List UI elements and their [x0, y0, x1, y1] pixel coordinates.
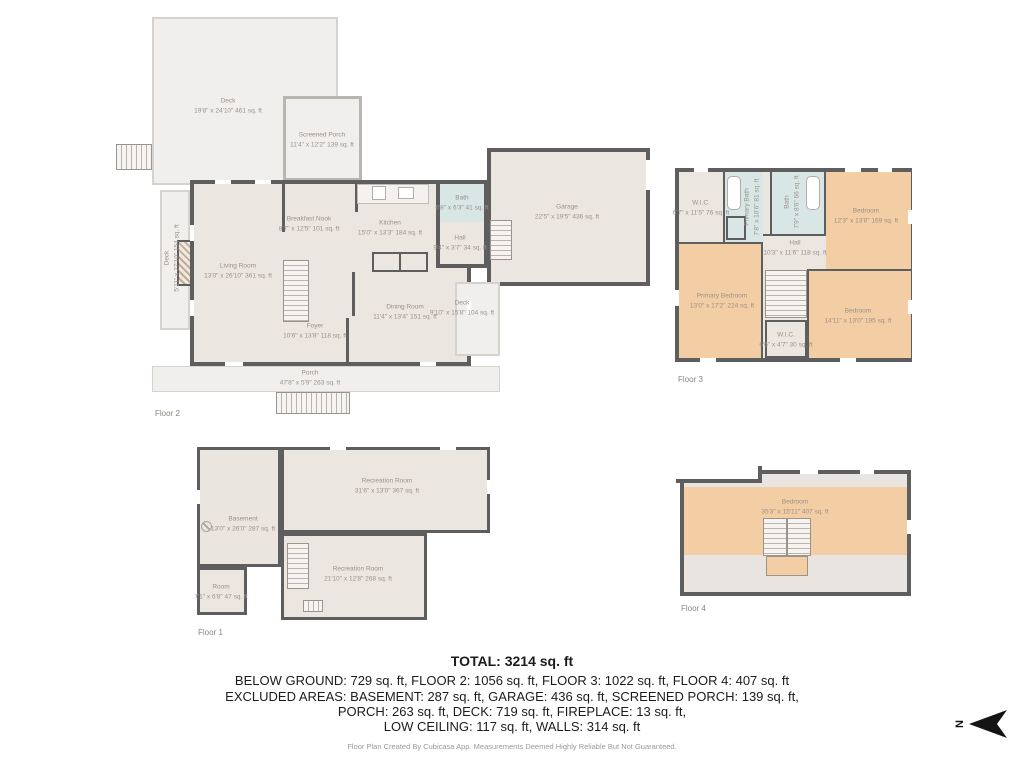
floor2-garage-outline — [487, 148, 650, 286]
interior-wall — [282, 184, 285, 232]
floor1-entry-steps — [303, 600, 323, 612]
floor3-hall — [763, 234, 826, 269]
window — [675, 290, 679, 306]
summary-total: TOTAL: 3214 sq. ft — [0, 653, 1024, 669]
garage-door-opening — [646, 160, 650, 190]
floor4-stairs-left — [763, 518, 787, 556]
window — [840, 358, 856, 362]
floor4-stairs-right — [787, 518, 811, 556]
window — [197, 490, 200, 504]
compass-north-label: N — [954, 720, 966, 728]
window — [878, 168, 892, 172]
summary-footer-disclaimer: Floor Plan Created By Cubicasa App. Meas… — [0, 742, 1024, 751]
window — [907, 520, 911, 534]
window — [908, 210, 912, 224]
floor3-bedroom-top — [826, 172, 911, 269]
shower-icon — [726, 216, 746, 240]
window — [330, 447, 346, 450]
stove-icon — [372, 186, 386, 200]
window — [190, 225, 194, 241]
kitchen-counter — [357, 184, 429, 204]
floor4-stair-landing — [766, 556, 808, 576]
floor2-screened-porch — [283, 96, 362, 181]
summary-line-lowceiling-walls: LOW CEILING: 117 sq. ft, WALLS: 314 sq. … — [0, 719, 1024, 734]
floor3-stairs — [765, 270, 807, 318]
floor1-stairs — [287, 543, 309, 589]
floor2-deck-right — [455, 282, 500, 356]
summary-line-porch-deck: PORCH: 263 sq. ft, DECK: 719 sq. ft, FIR… — [0, 704, 1024, 719]
window — [255, 180, 271, 184]
window — [860, 470, 874, 474]
window — [487, 480, 490, 494]
floor3-wic-top — [679, 172, 723, 242]
window — [467, 300, 471, 314]
closet-divider — [399, 252, 401, 272]
floor1-room — [197, 567, 247, 615]
floor1-basement — [197, 447, 281, 567]
window — [700, 358, 716, 362]
floor2-stairs — [283, 260, 309, 322]
lamp-icon — [201, 521, 212, 532]
north-arrow-icon — [968, 708, 1008, 740]
window — [845, 168, 861, 172]
floor1-rec-top — [281, 447, 490, 533]
floor3-label: Floor 3 — [678, 375, 703, 384]
window — [190, 300, 194, 316]
bathtub-icon — [727, 176, 741, 210]
floor2-label: Floor 2 — [155, 409, 180, 418]
floor2-bath-room — [440, 184, 484, 222]
kitchen-sink-icon — [398, 187, 414, 199]
summary-line-excluded: EXCLUDED AREAS: BASEMENT: 287 sq. ft, GA… — [0, 689, 1024, 704]
floor4-label: Floor 4 — [681, 604, 706, 613]
interior-wall — [352, 272, 355, 316]
compass: N — [948, 706, 1008, 742]
window — [225, 362, 243, 366]
floor1-label: Floor 1 — [198, 628, 223, 637]
floor2-house-outline — [190, 180, 471, 366]
garage-stairs — [490, 220, 512, 260]
floor-plan-page: Deck 19'8" x 24'10" 461 sq. ft Screened … — [0, 0, 1024, 768]
floor2-porch-steps — [276, 392, 350, 414]
floor3-bedroom-bottom — [807, 269, 911, 358]
window — [440, 447, 456, 450]
floor2-deck-stairs — [116, 144, 152, 170]
bathtub-icon — [806, 176, 820, 210]
floor2-porch — [152, 366, 500, 392]
window — [800, 470, 818, 474]
floor4-roof-notch — [676, 466, 762, 483]
window — [908, 300, 912, 314]
floor3-wic-bottom — [765, 320, 807, 358]
window — [420, 362, 436, 366]
summary-line-floors: BELOW GROUND: 729 sq. ft, FLOOR 2: 1056 … — [0, 673, 1024, 688]
window — [215, 180, 231, 184]
floor3-primary-bedroom — [679, 242, 763, 358]
interior-wall — [346, 318, 349, 364]
window — [694, 168, 708, 172]
